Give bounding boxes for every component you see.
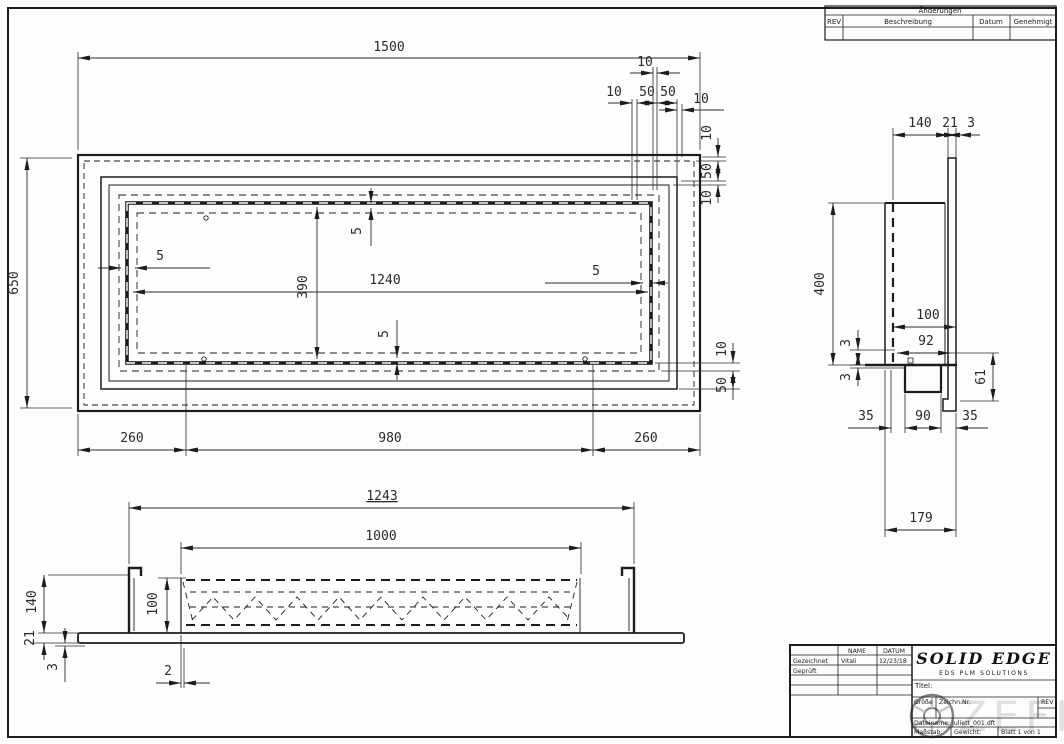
tb-docno-label: Zeichn.Nr. [939,699,971,706]
dim-side-b: 21 [942,116,958,131]
dim-side-d: 100 [916,308,939,323]
cad-drawing: ZEFIRE Änderungen REV Beschreibung Datum… [0,0,1064,744]
dim-plan-right-c: 10 [700,190,715,206]
changes-col-desc: Beschreibung [884,18,932,26]
tb-size-label: Größe [914,699,933,706]
dim-plan-bot-b: 980 [378,431,401,446]
sheet-border [8,8,1056,737]
dim-side-l: 35 [962,409,978,424]
front-view-dimensions: 1243 1000 140 21 3 100 2 [23,489,634,688]
dim-side-i: 61 [974,369,989,385]
drawing-sheet: ZEFIRE Änderungen REV Beschreibung Datum… [0,0,1064,744]
tb-brand-sub: EDS PLM SOLUTIONS [939,670,1029,677]
dim-plan-top-e: 10 [693,92,709,107]
dim-plan-top-a: 10 [637,55,653,70]
tb-checked-label: Geprüft [793,668,817,675]
dim-plan-bot-c: 260 [634,431,657,446]
tb-drawn-name: Vitali [841,658,857,665]
tb-filename: Dateiname: Juliett_001.dft [914,720,996,727]
tb-title-label: Titel: [914,682,932,690]
dim-front-f: 3 [46,663,61,671]
dim-front-g: 2 [164,664,172,679]
dim-plan-rb-a: 10 [715,341,730,357]
dim-plan-right-b: 50 [700,163,715,179]
tb-scale-label: Maßstab: [914,729,942,736]
dim-plan-wall-left: 5 [156,249,164,264]
dim-side-c: 3 [967,116,975,131]
dim-plan-bot-a: 260 [120,431,143,446]
dim-front-d: 100 [146,592,161,615]
dim-plan-width: 1500 [373,40,404,55]
dim-front-c: 140 [25,590,40,613]
dim-plan-inner-h: 390 [296,275,311,298]
tb-name-header: NAME [848,648,866,655]
dim-side-k: 90 [915,409,931,424]
dim-side-j: 35 [858,409,874,424]
dim-plan-right-a: 10 [700,125,715,141]
dim-front-e: 21 [23,630,38,646]
dim-side-e: 92 [918,334,934,349]
front-view-geometry [78,568,684,643]
dim-plan-top-c: 50 [639,85,655,100]
dim-plan-wall-top: 5 [350,227,365,235]
dim-front-a: 1243 [366,489,397,504]
dim-side-f: 3 [839,339,854,347]
tb-weight-label: Gewicht: [954,729,981,736]
tb-brand: SOLID EDGE [916,649,1052,668]
dim-plan-wall-right: 5 [592,264,600,279]
tb-rev-label: REV [1041,699,1054,706]
dim-side-h: 400 [813,272,828,295]
tb-drawn-label: Gezeichnet [793,658,828,665]
dim-plan-top-b: 10 [606,85,622,100]
plan-view-dimensions: 1500 650 10 10 50 50 10 [7,40,740,456]
side-view-geometry [865,158,957,411]
dim-plan-inner-w: 1240 [369,273,400,288]
changes-col-date: Datum [979,18,1003,26]
side-view-dimensions: 140 21 3 400 100 92 3 3 61 35 [813,116,999,537]
dim-plan-top-d: 50 [660,85,676,100]
dim-plan-wall-bot: 5 [377,330,392,338]
changes-table: Änderungen REV Beschreibung Datum Genehm… [825,6,1056,40]
changes-title: Änderungen [919,6,962,15]
dim-side-m: 179 [909,511,932,526]
dim-plan-height: 650 [7,271,22,294]
dim-side-a: 140 [908,116,931,131]
changes-col-rev: REV [827,18,841,26]
changes-col-appr: Genehmigt [1014,18,1053,26]
dim-plan-rb-b: 50 [715,377,730,393]
dim-side-g: 3 [839,373,854,381]
tb-sheet-label: Blatt 1 von 1 [1001,729,1041,736]
tb-datum-header: DATUM [883,648,905,655]
dim-front-b: 1000 [365,529,396,544]
tb-drawn-date: 12/23/18 [879,658,907,665]
